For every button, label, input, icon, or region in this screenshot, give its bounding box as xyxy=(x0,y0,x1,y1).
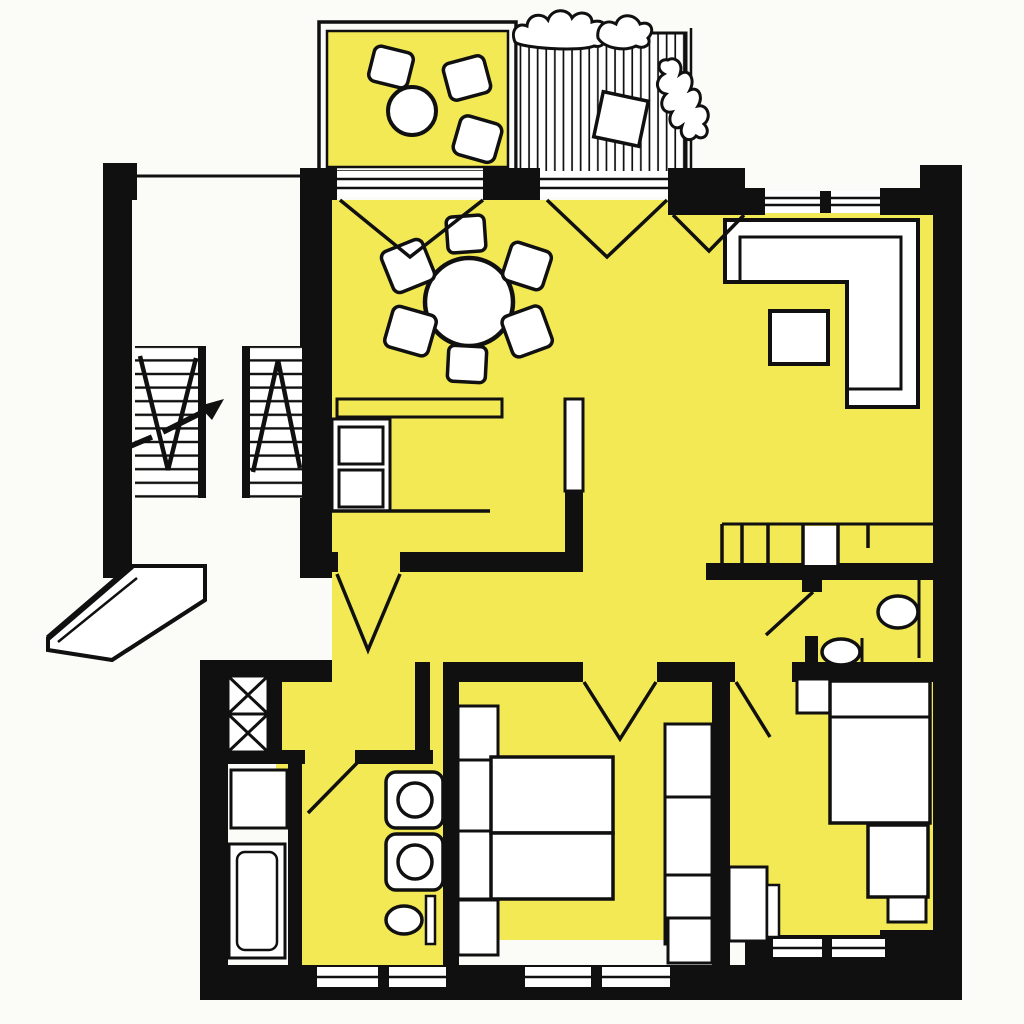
wall-bedrooms-partition xyxy=(712,682,730,965)
wall-kitchen-south-stub xyxy=(330,552,338,572)
washbasin-unit xyxy=(386,834,443,890)
floor-plan-page xyxy=(0,0,1024,1024)
desk xyxy=(868,825,928,897)
stool xyxy=(367,45,415,90)
square-planter xyxy=(594,92,649,147)
double-bed-mattress xyxy=(491,757,613,833)
wall-shaft-side xyxy=(268,676,282,752)
round-table xyxy=(388,87,436,135)
wall-wc-left xyxy=(805,636,818,666)
low-cabinet xyxy=(668,918,712,963)
nightstand xyxy=(797,679,833,713)
bedroom2-window xyxy=(773,939,885,957)
stair-rail-left xyxy=(198,346,206,498)
wall-kitchen-south xyxy=(400,552,583,572)
balcony-door-right xyxy=(540,171,668,197)
wall-stairwell-right xyxy=(300,174,332,578)
double-bed-mattress xyxy=(491,833,613,899)
bed-headboard xyxy=(458,760,491,831)
wall-bedroom1-north-west xyxy=(443,662,583,682)
dining-table xyxy=(425,258,513,346)
dresser-knob xyxy=(767,885,779,937)
toilet xyxy=(386,906,422,934)
dining-chair xyxy=(447,345,487,383)
wall-bathroom-mid xyxy=(355,750,433,764)
stair-rail-right xyxy=(242,346,250,498)
wood-deck-balcony xyxy=(513,11,708,176)
nightstand xyxy=(458,900,498,955)
closet-open-cell xyxy=(804,526,837,565)
living-room-window xyxy=(765,191,880,213)
wall-kitchen-divider-stub xyxy=(565,490,583,566)
toilet xyxy=(822,639,860,665)
toilet-tank xyxy=(426,896,435,944)
pass-through-divider xyxy=(565,399,583,491)
desk-chair xyxy=(888,897,926,922)
wall-left-lower-exterior xyxy=(200,660,228,1000)
dresser xyxy=(729,867,767,941)
floor-plan-drawing xyxy=(0,0,1024,1024)
wall-bedroom1-north-east xyxy=(657,662,735,682)
single-bed xyxy=(830,681,930,823)
bathroom-window xyxy=(317,967,446,987)
balcony-door-left xyxy=(337,171,483,197)
bathroom xyxy=(386,772,443,944)
stairwell xyxy=(107,346,302,498)
ventilation-shaft xyxy=(228,676,268,752)
dining-chair xyxy=(446,215,486,254)
stool xyxy=(442,54,492,102)
wall-top-pier xyxy=(300,168,337,200)
utility-room xyxy=(229,770,287,958)
wardrobe xyxy=(665,724,712,944)
coffee-table xyxy=(770,311,828,364)
bedroom1-window xyxy=(525,967,670,987)
bed-headboard xyxy=(458,831,491,899)
wall-bathroom-stub xyxy=(415,662,430,754)
wall-bottom-exterior xyxy=(200,965,760,1000)
wall-right-exterior xyxy=(933,190,962,935)
kitchen-counter xyxy=(337,399,502,417)
nightstand xyxy=(458,706,498,760)
balcony-terrace xyxy=(319,22,516,172)
wall-top-pier xyxy=(668,168,745,215)
wall-top-pier xyxy=(745,188,765,215)
wall-left-exterior xyxy=(103,174,132,578)
wall-wc-jamb xyxy=(802,567,822,592)
washing-machine xyxy=(231,770,287,828)
washbasin-unit xyxy=(386,772,443,828)
wall-top-pier xyxy=(483,168,540,200)
wall-utility-bathroom xyxy=(288,764,302,965)
washbasin xyxy=(878,596,918,628)
